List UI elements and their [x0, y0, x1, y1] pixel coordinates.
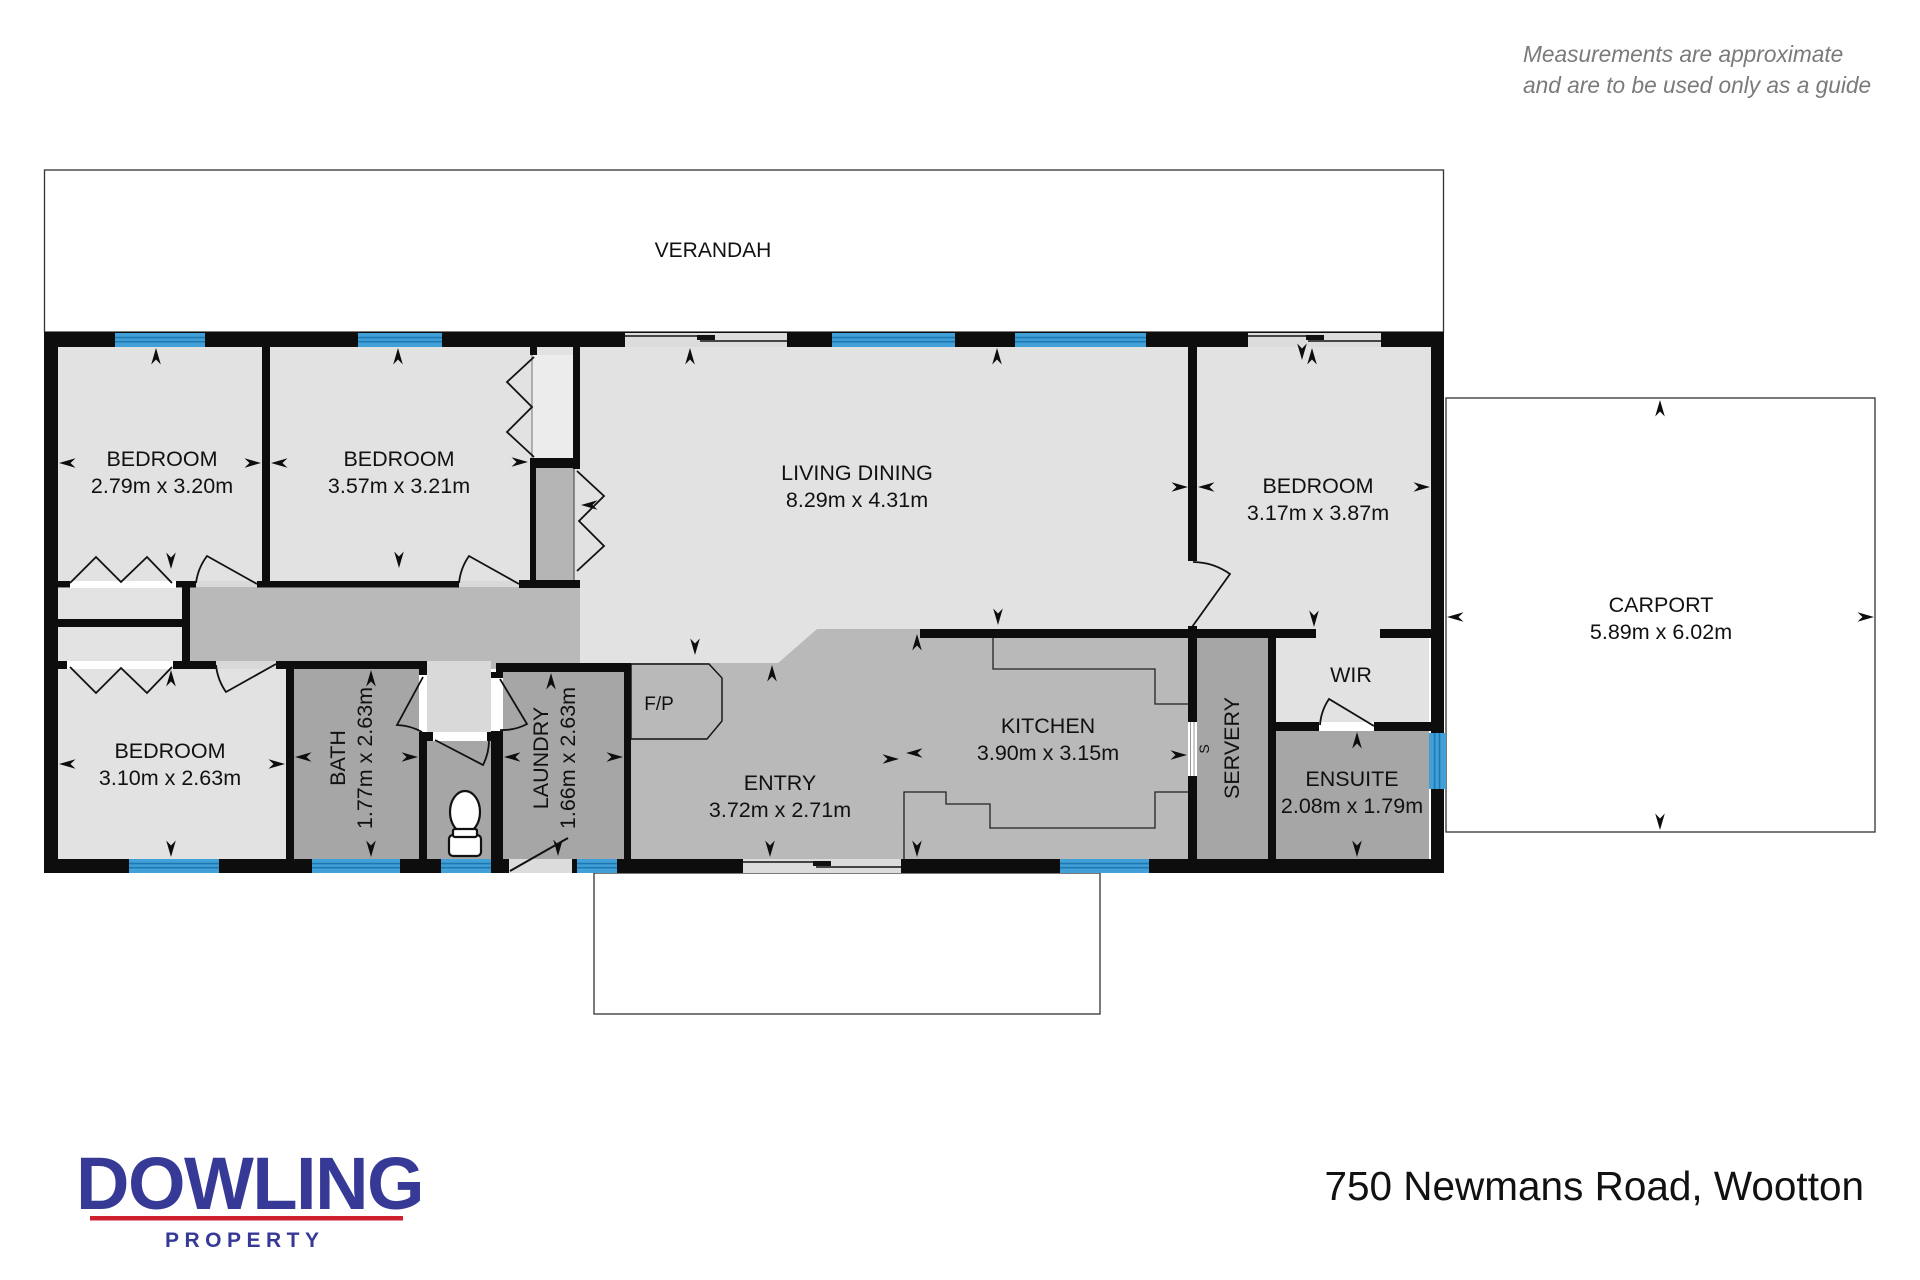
- svg-text:BEDROOM: BEDROOM: [114, 739, 225, 763]
- svg-text:3.72m x 2.71m: 3.72m x 2.71m: [709, 798, 851, 822]
- svg-text:750 Newmans Road, Wootton: 750 Newmans Road, Wootton: [1324, 1163, 1864, 1209]
- svg-text:DOWLING: DOWLING: [76, 1142, 423, 1225]
- svg-text:3.90m x 3.15m: 3.90m x 3.15m: [977, 741, 1119, 765]
- svg-text:LAUNDRY: LAUNDRY: [529, 707, 553, 809]
- svg-text:BATH: BATH: [326, 730, 350, 786]
- svg-text:KITCHEN: KITCHEN: [1001, 714, 1095, 738]
- svg-text:2.08m x 1.79m: 2.08m x 1.79m: [1281, 794, 1423, 818]
- svg-text:ENTRY: ENTRY: [744, 771, 816, 795]
- svg-text:Measurements are approximate: Measurements are approximate: [1523, 41, 1843, 67]
- svg-text:BEDROOM: BEDROOM: [343, 447, 454, 471]
- svg-text:3.57m x 3.21m: 3.57m x 3.21m: [328, 474, 470, 498]
- svg-text:1.77m x 2.63m: 1.77m x 2.63m: [353, 687, 377, 829]
- svg-text:ENSUITE: ENSUITE: [1305, 767, 1398, 791]
- svg-text:BEDROOM: BEDROOM: [106, 447, 217, 471]
- svg-text:SERVERY: SERVERY: [1220, 697, 1244, 799]
- svg-text:8.29m x 4.31m: 8.29m x 4.31m: [786, 488, 928, 512]
- svg-text:5.89m x 6.02m: 5.89m x 6.02m: [1590, 620, 1732, 644]
- svg-text:F/P: F/P: [644, 694, 674, 715]
- svg-text:3.10m x 2.63m: 3.10m x 2.63m: [99, 766, 241, 790]
- svg-text:1.66m x 2.63m: 1.66m x 2.63m: [556, 687, 580, 829]
- svg-text:VERANDAH: VERANDAH: [655, 239, 772, 262]
- svg-text:3.17m x 3.87m: 3.17m x 3.87m: [1247, 501, 1389, 525]
- svg-text:LIVING DINING: LIVING DINING: [781, 461, 933, 485]
- svg-text:2.79m x 3.20m: 2.79m x 3.20m: [91, 474, 233, 498]
- svg-text:S: S: [1196, 744, 1212, 753]
- svg-text:PROPERTY: PROPERTY: [165, 1229, 325, 1252]
- svg-text:and are to be used only as a g: and are to be used only as a guide: [1523, 72, 1871, 98]
- svg-text:BEDROOM: BEDROOM: [1262, 474, 1373, 498]
- svg-text:CARPORT: CARPORT: [1609, 593, 1714, 617]
- svg-text:WIR: WIR: [1330, 663, 1372, 687]
